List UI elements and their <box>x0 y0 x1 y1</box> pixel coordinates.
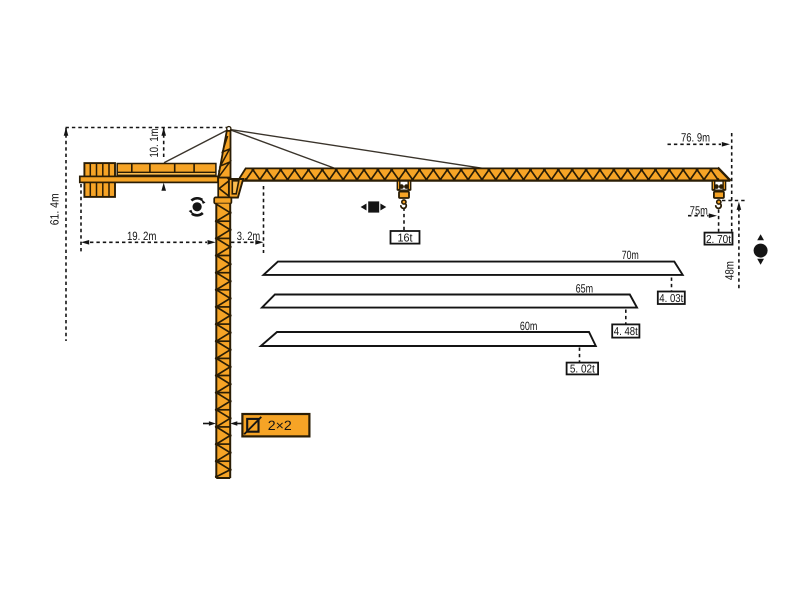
svg-text:5. 02t: 5. 02t <box>570 364 596 376</box>
svg-text:65m: 65m <box>576 282 594 296</box>
svg-text:4. 03t: 4. 03t <box>659 293 684 305</box>
svg-text:10. 1m: 10. 1m <box>147 128 161 157</box>
svg-text:2×2: 2×2 <box>268 418 292 433</box>
svg-text:3. 2m: 3. 2m <box>237 229 261 243</box>
svg-text:48m: 48m <box>723 261 737 280</box>
svg-text:4. 48t: 4. 48t <box>614 326 639 338</box>
svg-text:2. 70t: 2. 70t <box>706 234 732 246</box>
svg-text:75m: 75m <box>690 203 708 217</box>
svg-text:60m: 60m <box>520 319 538 333</box>
svg-text:76. 9m: 76. 9m <box>681 130 710 144</box>
svg-text:61. 4m: 61. 4m <box>48 193 62 225</box>
svg-text:70m: 70m <box>622 248 639 262</box>
svg-text:19. 2m: 19. 2m <box>127 229 157 243</box>
svg-text:16t: 16t <box>398 233 414 245</box>
